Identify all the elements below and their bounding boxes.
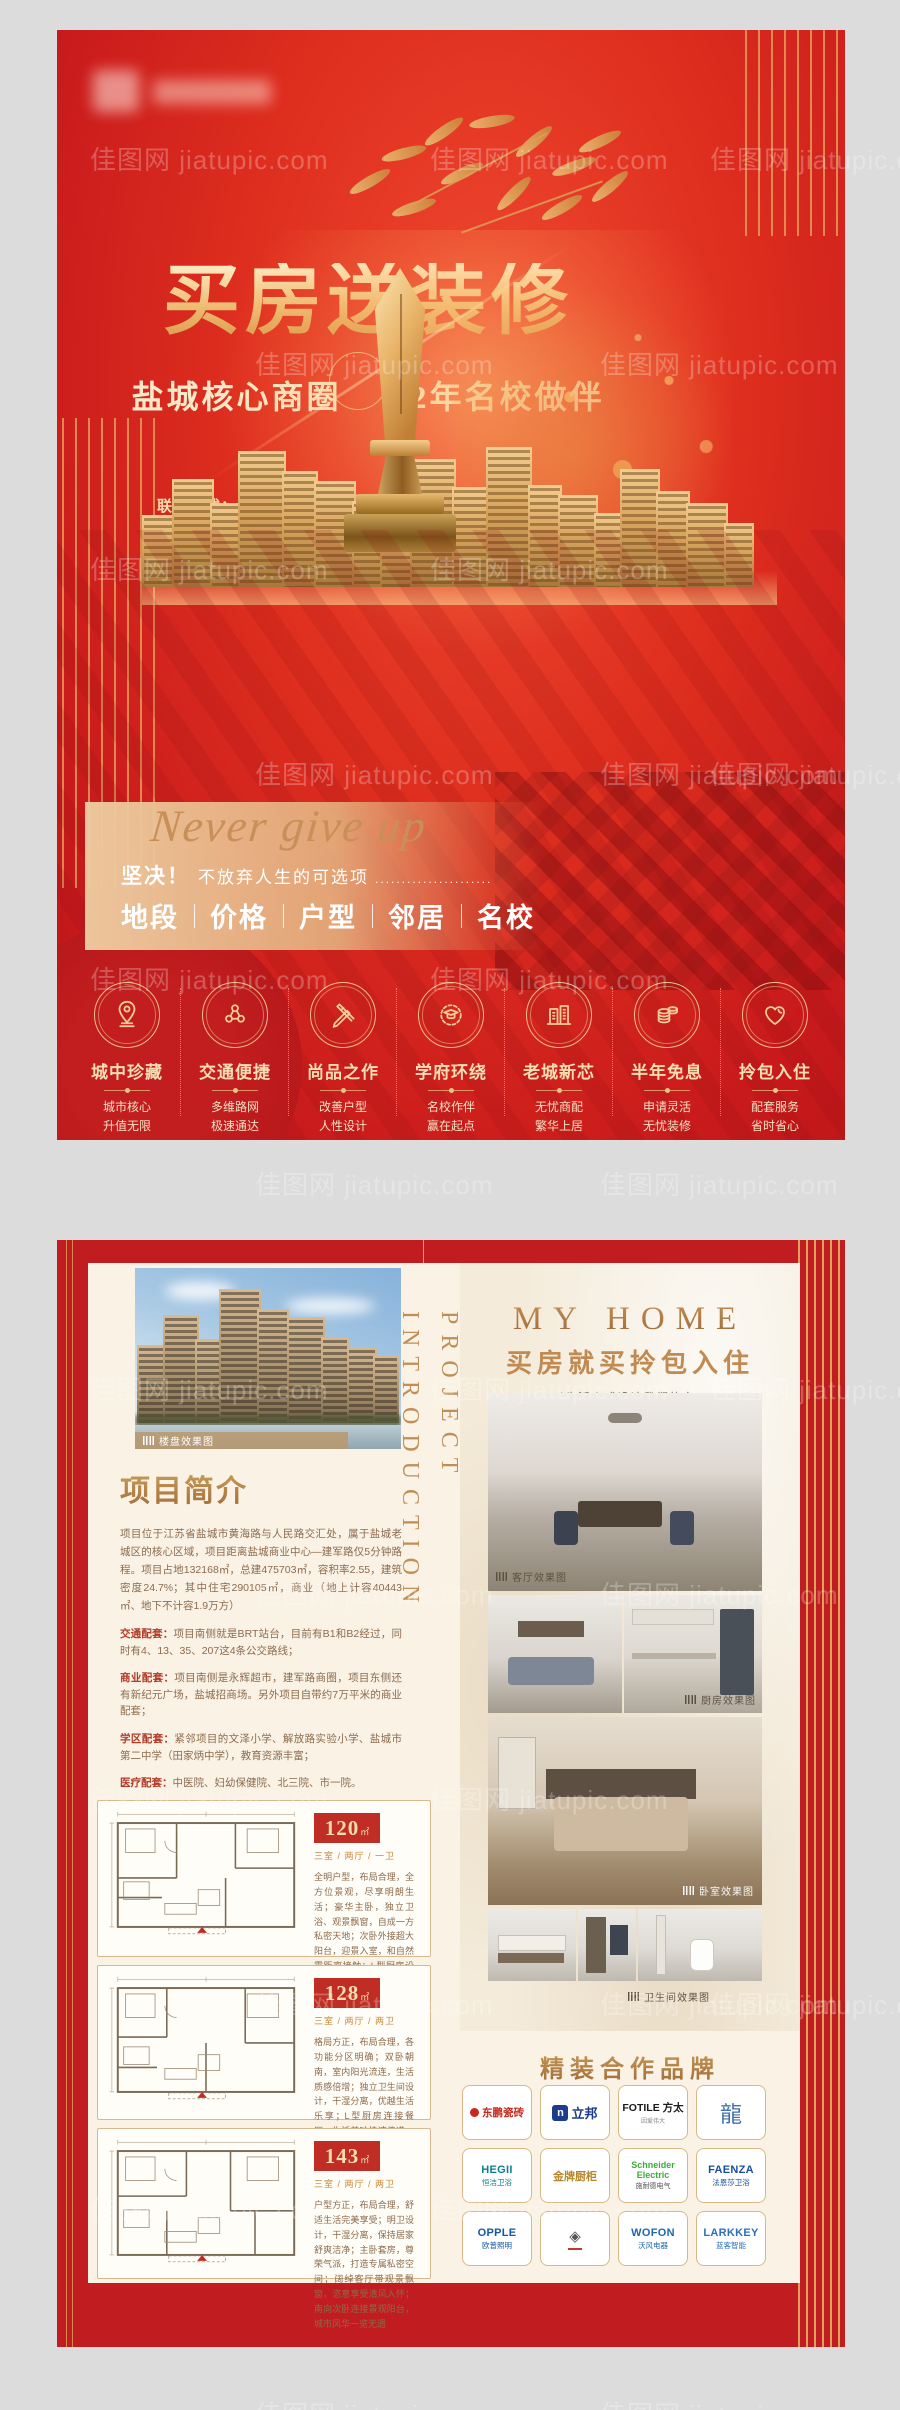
gold-edge-lines: [66, 1240, 73, 2347]
network-icon: [202, 982, 268, 1048]
myhome-marble-panel: MY HOME 买房就买拎包入住 以生活方式设计我们的家， 在家过好自己的生活。…: [460, 1263, 800, 2031]
map-pin-icon: [94, 982, 160, 1048]
brand-cn: 恒洁卫浴: [482, 2177, 512, 2188]
feature-item: 城中珍藏城市核心升值无限: [73, 982, 181, 1136]
bamboo-leaf-icon: [347, 165, 392, 198]
photo-tower: [163, 1315, 199, 1423]
brand-logo-schneider: Schneider Electric施耐德电气: [618, 2148, 688, 2203]
keyword: 名校: [477, 896, 535, 935]
photo-tower: [195, 1339, 221, 1423]
brand-cn: 蓝客智能: [716, 2240, 746, 2251]
brand-cn: 东鹏瓷砖: [482, 2105, 524, 2120]
feature-underline: [536, 1090, 582, 1091]
floorplan-drawing: [108, 1809, 304, 1946]
photo-tower: [219, 1289, 261, 1423]
brand-en: HEGII: [481, 2164, 512, 2176]
vertical-title-line1: PROJECT: [435, 1311, 462, 1971]
slogan-band: Never give up 坚决！不放弃人生的可选项..............…: [85, 802, 543, 950]
area-unit: ㎡: [360, 2153, 369, 2166]
bamboo-stem: [461, 180, 603, 233]
supporting-item: 学区配套：紧邻项目的文泽小学、解放路实验小学、盐城市第二中学（田家炳中学），教育…: [120, 1731, 402, 1765]
graduation-icon: [418, 982, 484, 1048]
slogan-cn-bold: 坚决！: [121, 865, 190, 888]
feature-underline: [644, 1090, 690, 1091]
floorplan-spec: 三室 / 两厅 / 一卫: [314, 1849, 418, 1862]
floorplan-card: 143㎡三室 / 两厅 / 两卫户型方正，布局合理，舒适生活完美享受；明卫设计，…: [97, 2128, 431, 2279]
floorplan-info: 143㎡三室 / 两厅 / 两卫户型方正，布局合理，舒适生活完美享受；明卫设计，…: [314, 2141, 418, 2332]
page-1-hero: 买房送装修 盐城核心商圈12年名校做伴 联系方式： 0005 8888 8888…: [57, 30, 845, 1140]
feature-title: 交通便捷: [183, 1058, 287, 1083]
brand-cn: 沃风电器: [638, 2240, 668, 2251]
feature-underline: [320, 1090, 366, 1091]
keyword: 地段: [121, 896, 179, 935]
intro-paragraph: 项目位于江苏省盐城市黄海路与人民路交汇处，属于盐城老城区的核心区域，项目距离盐城…: [120, 1525, 402, 1615]
floorplan-drawing: [108, 2137, 304, 2274]
area-value: 128: [325, 1981, 360, 2006]
keyword-divider: [283, 904, 284, 928]
floorplan-drawing: [108, 1974, 304, 2111]
feature-title: 拎包入住: [723, 1058, 827, 1083]
brand-en: FAENZA: [708, 2164, 754, 2176]
bedroom-caption: 卧室效果图: [683, 1883, 754, 1898]
content-panel: 轻 / 奢 / 风 楼盘效果图 PROJECT INTRODUCTION MY …: [88, 1263, 800, 2283]
brand-logo-dongpeng: 东鹏瓷砖: [462, 2085, 532, 2140]
brand-en: OPPLE: [478, 2227, 517, 2239]
area-badge: 120㎡: [314, 1813, 380, 1843]
bamboo-leaf-icon: [589, 168, 631, 206]
building-photo-caption: 楼盘效果图: [135, 1432, 348, 1449]
heart-icon: [742, 982, 808, 1048]
feature-underline: [752, 1090, 798, 1091]
feature-subtext: 城市核心升值无限: [75, 1098, 179, 1136]
feature-underline: [428, 1090, 474, 1091]
brand-en: LARKKEY: [703, 2227, 758, 2239]
dining-room-photo: 客厅效果图: [488, 1393, 762, 1591]
bamboo-leaf-icon: [468, 112, 515, 131]
living-caption: 客厅效果图: [496, 1569, 567, 1584]
buildings-icon: [526, 982, 592, 1048]
kitchen-photo: 厨房效果图: [624, 1595, 762, 1713]
kitchen-caption: 厨房效果图: [685, 1692, 756, 1707]
bamboo-leaf-icon: [551, 153, 598, 179]
keyword-row: 地段价格户型邻居名校: [121, 896, 535, 935]
photo-tower: [257, 1309, 289, 1423]
keyword: 价格: [210, 896, 268, 935]
feature-item: 拎包入住配套服务省时省心: [721, 982, 829, 1136]
blurred-developer-logo-text: [153, 80, 271, 104]
supporting-label: 商业配套：: [120, 1672, 174, 1684]
brand-logo-hegii: HEGII恒洁卫浴: [462, 2148, 532, 2203]
feature-subtext: 申请灵活无忧装修: [615, 1098, 719, 1136]
gold-pinstripes-top-right: [745, 30, 845, 236]
brand-logo-nippon: n立邦: [540, 2085, 610, 2140]
dragon-emblem-icon: 龍: [720, 2097, 742, 2129]
keyword: 户型: [299, 896, 357, 935]
bamboo-leaf-icon: [577, 127, 623, 156]
watermark-text: 佳图网 jiatupic.com: [600, 2395, 839, 2410]
feature-subtext: 多维路网极速通达: [183, 1098, 287, 1136]
brand-grid: 东鹏瓷砖n立邦FOTILE 方太因爱伟大龍HEGII恒洁卫浴金牌厨柜Schnei…: [462, 2085, 768, 2266]
supporting-label: 交通配套：: [120, 1628, 173, 1640]
feature-underline: [104, 1090, 150, 1091]
brand-en: Schneider Electric: [619, 2160, 687, 2181]
brand-row: 东鹏瓷砖: [470, 2105, 524, 2120]
floorplan-desc: 户型方正，布局合理，舒适生活完美享受；明卫设计，干湿分离，保持居家舒爽洁净；主卧…: [314, 2198, 414, 2332]
seal-emblem-icon: ◈: [569, 2227, 581, 2245]
supporting-item: 医疗配套：中医院、妇幼保健院、北三院、市一院。: [120, 1775, 402, 1792]
feature-subtext: 改善户型人性设计: [291, 1098, 395, 1136]
keyword-divider: [461, 904, 462, 928]
chevron-pattern: [495, 772, 845, 990]
brand-logo-seal: ◈: [540, 2211, 610, 2266]
slogan-en: Never give up: [148, 800, 429, 852]
feature-subtext: 名校作伴赢在起点: [399, 1098, 503, 1136]
brands-heading: 精装合作品牌: [460, 2049, 800, 2084]
feature-title: 学府环绕: [399, 1058, 503, 1083]
feature-title: 半年免息: [615, 1058, 719, 1083]
supporting-list: 交通配套：项目南侧就是BRT站台，目前有B1和B2经过，同时有4、13、35、2…: [120, 1626, 402, 1792]
feature-row: 城中珍藏城市核心升值无限交通便捷多维路网极速通达尚品之作改善户型人性设计学府环绕…: [73, 982, 829, 1136]
brand-cn: 欧普照明: [482, 2240, 512, 2251]
living-room-photo: [488, 1595, 622, 1713]
brand-logo-dragon: 龍: [696, 2085, 766, 2140]
bedroom-photo: 卧室效果图: [488, 1717, 762, 1905]
floorplan-card: 120㎡三室 / 两厅 / 一卫全明户型，布局合理，全方位景观，尽享明朗生活；豪…: [97, 1800, 431, 1957]
keyword-divider: [372, 904, 373, 928]
brand-tagline: 因爱伟大: [641, 2116, 665, 2125]
feature-subtext: 配套服务省时省心: [723, 1098, 827, 1136]
brand-cn: 金牌厨柜: [553, 2168, 597, 2184]
area-badge: 143㎡: [314, 2141, 380, 2171]
area-value: 143: [325, 2144, 360, 2169]
area-unit: ㎡: [360, 1825, 369, 1838]
slogan-cn-row: 坚决！不放弃人生的可选项......................: [121, 860, 492, 890]
floorplan-card: 128㎡三室 / 两厅 / 两卫格局方正，布局合理，各功能分区明确；双卧朝南，室…: [97, 1965, 431, 2120]
blurred-developer-logo: [93, 70, 139, 112]
feature-title: 城中珍藏: [75, 1058, 179, 1083]
supporting-item: 交通配套：项目南侧就是BRT站台，目前有B1和B2经过，同时有4、13、35、2…: [120, 1626, 402, 1660]
feature-title: 老城新芯: [507, 1058, 611, 1083]
feature-subtext: 无忧商配繁华上居: [507, 1098, 611, 1136]
bamboo-leaf-icon: [439, 159, 485, 188]
gold-stripe-band-right: [798, 1240, 845, 2347]
poster-canvas: 买房送装修 盐城核心商圈12年名校做伴 联系方式： 0005 8888 8888…: [0, 0, 900, 2410]
brand-en: WOFON: [631, 2227, 675, 2239]
feature-item: 半年免息申请灵活无忧装修: [613, 982, 721, 1136]
keyword-divider: [194, 904, 195, 928]
brand-logo-larkkey: LARKKEY蓝客智能: [696, 2211, 766, 2266]
slogan-cn: 不放弃人生的可选项: [198, 868, 369, 887]
intro-heading: 项目简介: [120, 1466, 402, 1510]
watermark-text: 佳图网 jiatupic.com: [255, 1165, 494, 1202]
photo-tower: [321, 1337, 349, 1423]
feature-underline: [212, 1090, 258, 1091]
brand-logo-goldkitchen: 金牌厨柜: [540, 2148, 610, 2203]
brand-logo-opple: OPPLE欧普照明: [462, 2211, 532, 2266]
building-rendering-photo: 楼盘效果图: [135, 1268, 401, 1449]
photo-tower: [287, 1317, 325, 1423]
brand-en: FOTILE 方太: [622, 2100, 683, 2115]
feature-title: 尚品之作: [291, 1058, 395, 1083]
area-unit: ㎡: [360, 1990, 369, 2003]
area-value: 120: [325, 1816, 360, 1841]
supporting-text: 中医院、妇幼保健院、北三院、市一院。: [173, 1777, 362, 1789]
brand-logo-faenza: FAENZA法恩莎卫浴: [696, 2148, 766, 2203]
floorplan-spec: 三室 / 两厅 / 两卫: [314, 2177, 418, 2190]
brand-logo-fotile: FOTILE 方太因爱伟大: [618, 2085, 688, 2140]
coins-icon: [634, 982, 700, 1048]
seal-red-bar: [568, 2248, 582, 2250]
brand-cn: 立邦: [571, 2103, 597, 2122]
dongpeng-swoosh-icon: [470, 2108, 479, 2117]
brand-cn: 法恩莎卫浴: [712, 2177, 750, 2188]
feature-item: 老城新芯无忧商配繁华上居: [505, 982, 613, 1136]
myhome-subtitle: 买房就买拎包入住: [460, 1343, 800, 1380]
area-badge: 128㎡: [314, 1978, 380, 2008]
brand-logo-wofon: WOFON沃风电器: [618, 2211, 688, 2266]
design-tools-icon: [310, 982, 376, 1048]
slogan-dots: ......................: [375, 872, 492, 886]
bamboo-leaf-icon: [380, 142, 427, 165]
watermark-text: 佳图网 jiatupic.com: [600, 1165, 839, 1202]
feature-item: 尚品之作改善户型人性设计: [289, 982, 397, 1136]
bamboo-leaf-icon: [390, 195, 437, 220]
bath-closet-photo: [578, 1909, 636, 1981]
feature-item: 学府环绕名校作伴赢在起点: [397, 982, 505, 1136]
page-2-detail: 轻 / 奢 / 风 楼盘效果图 PROJECT INTRODUCTION MY …: [57, 1240, 845, 2347]
supporting-item: 商业配套：项目南侧是永辉超市，建军路商圈，项目东侧还有新纪元广场，盐城招商场。另…: [120, 1670, 402, 1720]
watermark-text: 佳图网 jiatupic.com: [255, 2395, 494, 2410]
nippon-n-icon: n: [552, 2105, 568, 2121]
bamboo-leaf-icon: [513, 123, 555, 161]
myhome-title: MY HOME: [460, 1301, 800, 1338]
supporting-label: 医疗配套：: [120, 1777, 173, 1789]
bath-caption: 卫生间效果图: [628, 1989, 710, 2004]
brand-row: n立邦: [552, 2103, 597, 2122]
bamboo-leaf-icon: [422, 114, 466, 149]
feature-item: 交通便捷多维路网极速通达: [181, 982, 289, 1136]
brand-cn: 施耐德电气: [636, 2181, 671, 2191]
supporting-label: 学区配套：: [120, 1733, 174, 1745]
floorplan-spec: 三室 / 两厅 / 两卫: [314, 2014, 418, 2027]
keyword: 邻居: [388, 896, 446, 935]
bath-vanity-photo: [488, 1909, 576, 1981]
bath-toilet-photo: [638, 1909, 762, 1981]
